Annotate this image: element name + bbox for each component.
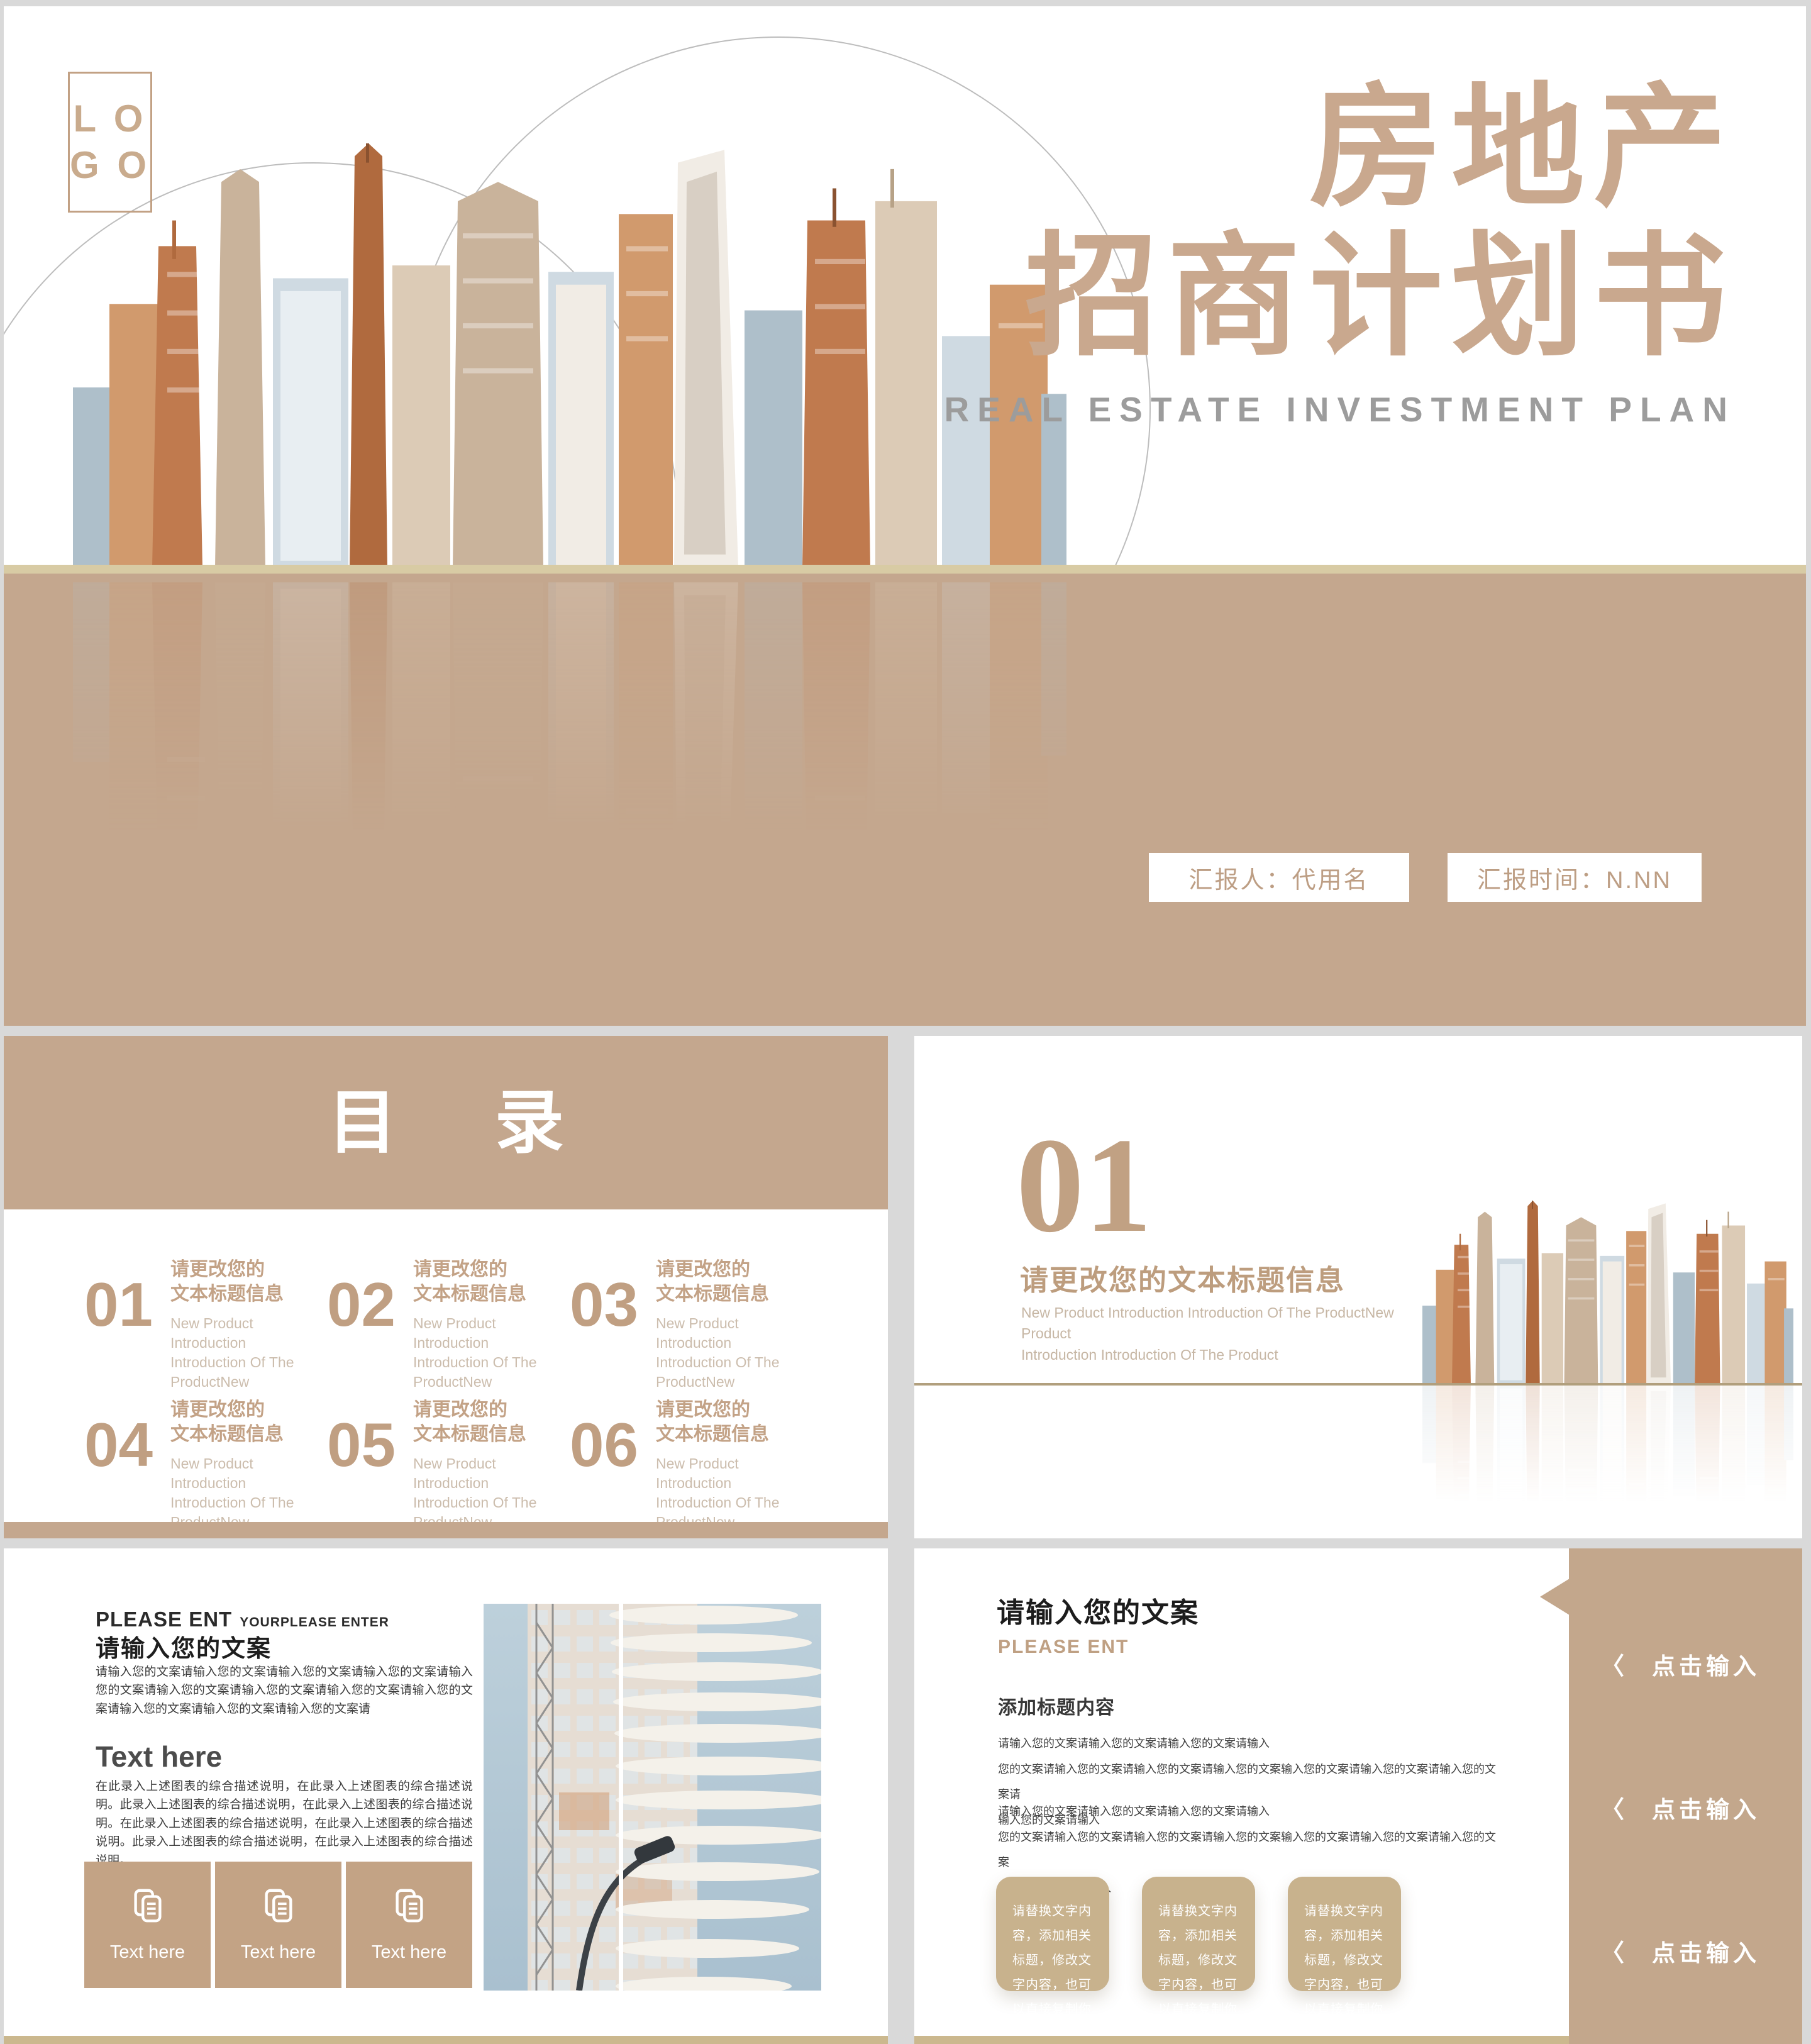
logo-box: L O G O [68, 72, 152, 213]
cover-title-block: 房地产 招商计划书 REAL ESTATE INVESTMENT PLAN [944, 74, 1736, 430]
toc-item-3: 03 请更改您的 文本标题信息 New Product Introduction… [570, 1257, 804, 1392]
detail-paragraph-1: 请输入您的文案请输入您的文案请输入您的文案请输入您的文案请输入您的文案请输入您的… [96, 1663, 473, 1718]
toc-item-title-line2: 文本标题信息 [170, 1422, 321, 1447]
paragraph-line: 请输入您的文案请输入您的文案请输入您的文案请输入 [998, 1731, 1501, 1757]
cover-slide: L O G O 房地产 招商计划书 REAL ESTATE INVESTMENT… [4, 6, 1806, 1026]
toc-item-title-line2: 文本标题信息 [413, 1422, 564, 1447]
toc-item-title-line1: 请更改您的 [170, 1257, 321, 1282]
content-card-1: 请替换文字内容，添加相关标题，修改文字内容，也可以直接复制你的内容到此。 [996, 1877, 1109, 1991]
toc-footer-band [4, 1522, 888, 1538]
copy-icon [390, 1887, 429, 1926]
cover-title-line1: 房地产 [944, 74, 1736, 223]
content-card-text: 请替换文字内容，添加相关标题，修改文字内容，也可以直接复制你的内容到此。 [1158, 1899, 1239, 2044]
chevron-left-icon: 〈 [1600, 1933, 1624, 1968]
toc-title: 目 录 [4, 1089, 888, 1158]
toc-item-number: 02 [327, 1274, 396, 1392]
content-footer-band [914, 2036, 1569, 2044]
detail-card-label: Text here [241, 1942, 316, 1963]
toc-item-number: 06 [570, 1414, 638, 1532]
logo-text-line2: G O [70, 147, 150, 184]
sidebar-item-label: 点击输入 [1652, 1934, 1760, 1968]
copy-icon [259, 1887, 298, 1926]
toc-item-4: 04 请更改您的 文本标题信息 New Product Introduction… [84, 1397, 318, 1532]
section-skyline-reflection [1422, 1386, 1793, 1524]
skyline-reflection [73, 582, 1066, 897]
toc-item-number: 03 [570, 1274, 638, 1392]
cover-subtitle: REAL ESTATE INVESTMENT PLAN [944, 389, 1736, 430]
copy-icon [128, 1887, 167, 1926]
toc-item-desc: New Product Introduction Introduction Of… [170, 1454, 321, 1532]
detail-card-row: Text here Text here Text here [84, 1862, 472, 1988]
detail-card-1: Text here [84, 1862, 211, 1988]
content-card-2: 请替换文字内容，添加相关标题，修改文字内容，也可以直接复制你的内容到此。 [1142, 1877, 1255, 1991]
city-skyline-image [73, 143, 1066, 567]
toc-item-desc: New Product Introduction Introduction Of… [656, 1314, 807, 1392]
toc-item-title-line1: 请更改您的 [656, 1257, 807, 1282]
paragraph-line: 请输入您的文案请输入您的文案请输入您的文案请输入 [998, 1799, 1501, 1825]
toc-item-1: 01 请更改您的 文本标题信息 New Product Introduction… [84, 1257, 318, 1392]
detail-footer-band [4, 2036, 888, 2044]
toc-item-desc: New Product Introduction Introduction Of… [413, 1314, 564, 1392]
report-date-badge: 汇报时间：N.NN [1448, 853, 1702, 902]
detail-slide: PLEASE ENTYOURPLEASE ENTER 请输入您的文案 请输入您的… [4, 1548, 888, 2044]
detail-card-label: Text here [110, 1942, 185, 1963]
sidebar-item-label: 点击输入 [1652, 1647, 1760, 1681]
detail-subheading: Text here [96, 1740, 222, 1774]
content-card-text: 请替换文字内容，添加相关标题，修改文字内容，也可以直接复制你的内容到此。 [1304, 1899, 1385, 2044]
sidebar-click-input-button-1[interactable]: 〈 点击输入 [1600, 1647, 1760, 1681]
chevron-left-icon: 〈 [1600, 1647, 1624, 1681]
toc-item-desc: New Product Introduction Introduction Of… [413, 1454, 564, 1532]
toc-item-number: 05 [327, 1414, 396, 1532]
toc-item-6: 06 请更改您的 文本标题信息 New Product Introduction… [570, 1397, 804, 1532]
sidebar-click-input-button-3[interactable]: 〈 点击输入 [1600, 1933, 1760, 1968]
gold-divider-line [4, 565, 1806, 574]
sidebar-notch-arrow [1540, 1579, 1570, 1615]
detail-card-3: Text here [346, 1862, 472, 1988]
content-card-text: 请替换文字内容，添加相关标题，修改文字内容，也可以直接复制你的内容到此。 [1012, 1899, 1093, 2044]
section-slide: 01 请更改您的文本标题信息 New Product Introduction … [914, 1036, 1802, 1538]
cover-title-line2: 招商计划书 [944, 223, 1736, 372]
content-title: 请输入您的文案 [997, 1590, 1199, 1630]
detail-card-label: Text here [372, 1942, 446, 1963]
toc-item-desc: New Product Introduction Introduction Of… [656, 1454, 807, 1532]
toc-slide: 目 录 01 请更改您的 文本标题信息 New Product Introduc… [4, 1036, 888, 1538]
detail-kicker: PLEASE ENT [96, 1608, 232, 1631]
toc-item-title-line2: 文本标题信息 [656, 1422, 807, 1447]
sidebar-click-input-button-2[interactable]: 〈 点击输入 [1600, 1790, 1760, 1825]
detail-card-2: Text here [215, 1862, 341, 1988]
content-card-3: 请替换文字内容，添加相关标题，修改文字内容，也可以直接复制你的内容到此。 [1288, 1877, 1401, 1991]
toc-item-desc: New Product Introduction Introduction Of… [170, 1314, 321, 1392]
detail-paragraph-2: 在此录入上述图表的综合描述说明，在此录入上述图表的综合描述说明。此录入上述图表的… [96, 1777, 473, 1870]
section-subtitle-line2: Introduction Introduction Of The Product [1021, 1345, 1398, 1365]
content-slide: 请输入您的文案 PLEASE ENT 添加标题内容 请输入您的文案请输入您的文案… [914, 1548, 1802, 2044]
detail-kicker-suffix: YOURPLEASE ENTER [240, 1615, 389, 1630]
section-title: 请更改您的文本标题信息 [1020, 1257, 1345, 1298]
toc-item-5: 05 请更改您的 文本标题信息 New Product Introduction… [327, 1397, 561, 1532]
section-number: 01 [1016, 1118, 1152, 1253]
toc-item-number: 01 [84, 1274, 153, 1392]
content-subheading: 添加标题内容 [998, 1692, 1115, 1719]
toc-item-title-line2: 文本标题信息 [413, 1282, 564, 1306]
paragraph-line: 您的文案请输入您的文案请输入您的文案请输入您的文案输入您的文案请输入您的文案请输… [998, 1825, 1501, 1875]
toc-item-title-line1: 请更改您的 [413, 1257, 564, 1282]
content-kicker: PLEASE ENT [998, 1636, 1129, 1658]
sidebar-item-label: 点击输入 [1652, 1791, 1760, 1825]
content-card-row: 请替换文字内容，添加相关标题，修改文字内容，也可以直接复制你的内容到此。 请替换… [996, 1877, 1401, 1991]
section-skyline-image [1422, 1201, 1793, 1383]
toc-item-title-line2: 文本标题信息 [170, 1282, 321, 1306]
toc-item-number: 04 [84, 1414, 153, 1532]
toc-item-title-line1: 请更改您的 [413, 1397, 564, 1422]
toc-item-title-line1: 请更改您的 [170, 1397, 321, 1422]
toc-item-2: 02 请更改您的 文本标题信息 New Product Introduction… [327, 1257, 561, 1392]
detail-title: 请输入您的文案 [96, 1629, 272, 1664]
toc-item-title-line2: 文本标题信息 [656, 1282, 807, 1306]
presenter-badge: 汇报人：代用名 [1149, 853, 1409, 902]
logo-text-line1: L O [74, 100, 147, 138]
toc-header-band: 目 录 [4, 1036, 888, 1209]
section-subtitle-line1: New Product Introduction Introduction Of… [1021, 1302, 1398, 1345]
building-photo [484, 1604, 821, 1991]
content-sidebar: 〈 点击输入 〈 点击输入 〈 点击输入 [1569, 1548, 1802, 2044]
toc-item-title-line1: 请更改您的 [656, 1397, 807, 1422]
chevron-left-icon: 〈 [1600, 1790, 1624, 1825]
